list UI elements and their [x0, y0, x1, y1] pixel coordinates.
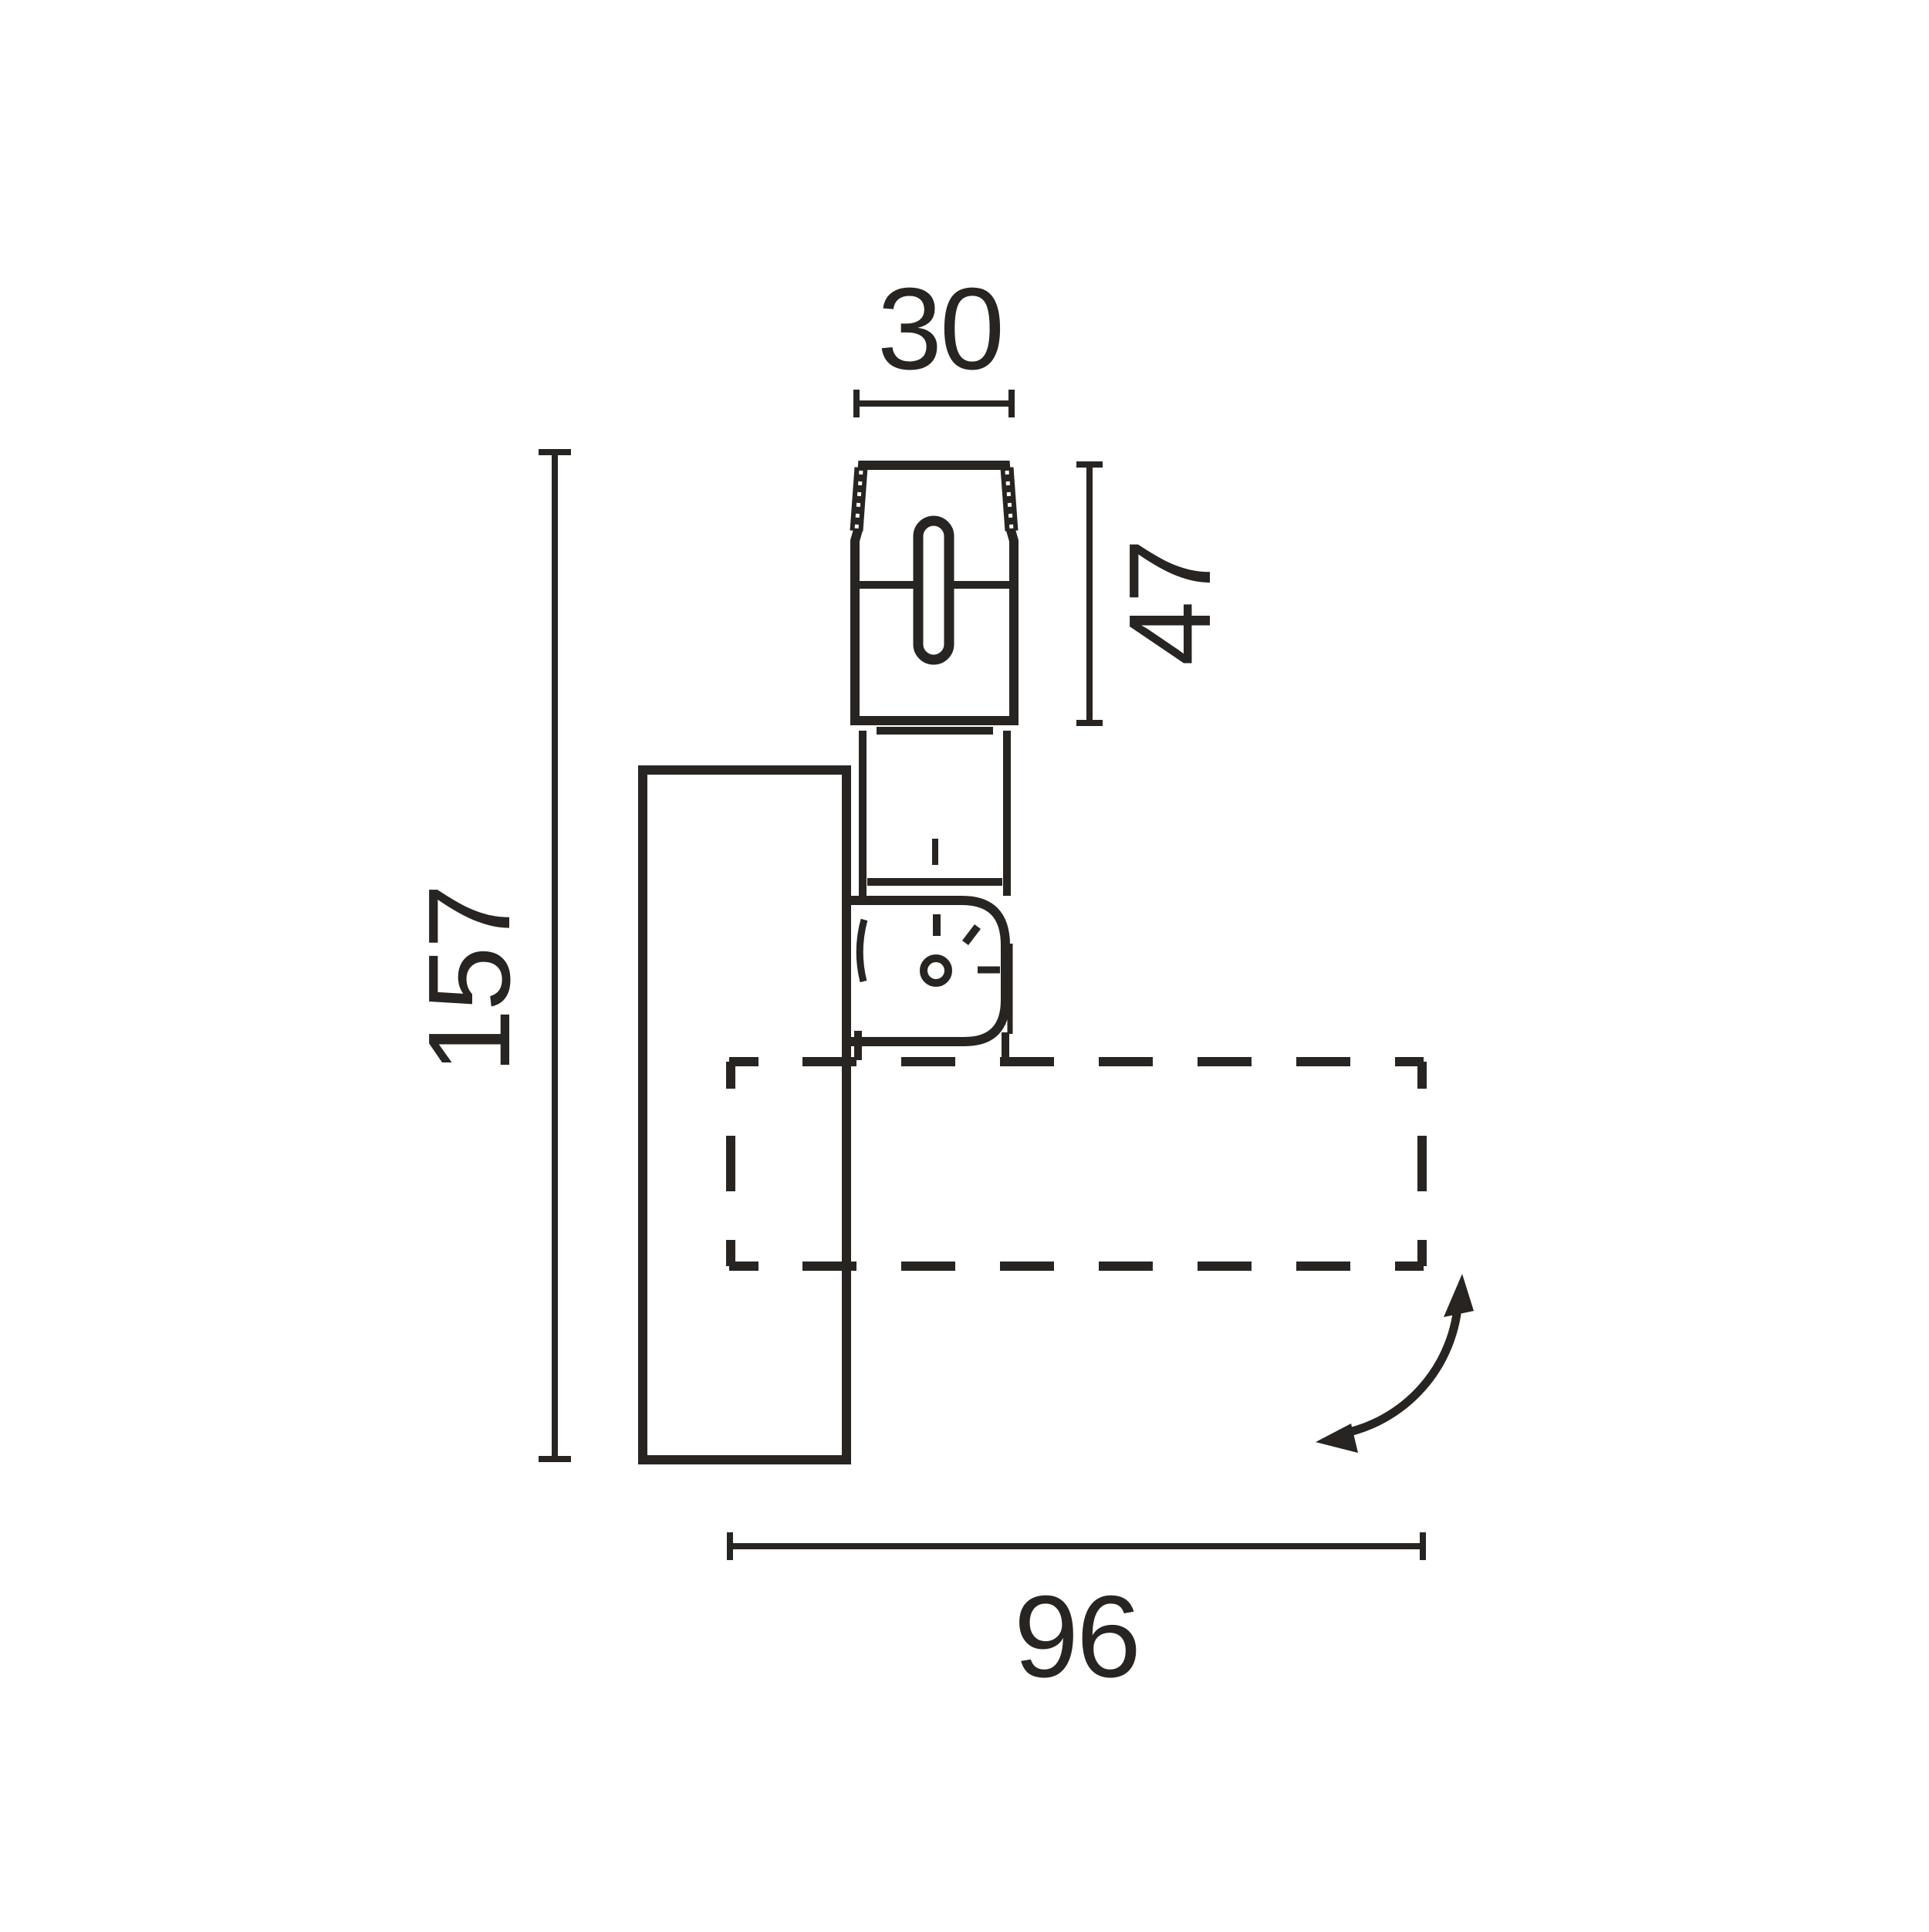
adapter-outline: [855, 465, 1014, 721]
dimension-adapter-height: 47: [1076, 464, 1235, 723]
adapter-slot: [918, 521, 949, 660]
dim-label-157: 157: [404, 887, 534, 1074]
fixture-body-outline: [643, 770, 846, 1460]
knurl-band-right: [1007, 468, 1012, 531]
dim-label-96: 96: [1014, 1571, 1139, 1701]
track-adapter: [855, 465, 1014, 721]
arrow-head-left-icon: [1316, 1424, 1358, 1453]
rotated-position-outline: [729, 1031, 1424, 1266]
rotation-arrow: [1316, 1274, 1474, 1453]
dimension-top-width: 30: [856, 263, 1012, 417]
dimension-overall-height: 157: [404, 452, 571, 1459]
dim-label-47: 47: [1104, 541, 1235, 666]
fixture-dimension-drawing: 30 47 157 96: [0, 0, 1929, 1932]
swivel-joint: [845, 900, 1010, 1042]
rotation-arc: [1339, 1299, 1458, 1434]
technical-drawing-page: 30 47 157 96: [0, 0, 1929, 1932]
knurl-band-left: [856, 468, 861, 531]
joint-left-arc: [860, 920, 864, 981]
arrow-head-up-icon: [1444, 1274, 1474, 1317]
pivot-ray-diagonal: [965, 927, 978, 943]
dim-label-30: 30: [877, 263, 1002, 393]
fixture-body: [643, 770, 846, 1460]
dimension-projection: 96: [730, 1532, 1423, 1701]
stem: [863, 731, 1007, 896]
pivot-circle: [924, 958, 948, 983]
drawing-ink-layer: 30 47 157 96: [404, 263, 1474, 1701]
